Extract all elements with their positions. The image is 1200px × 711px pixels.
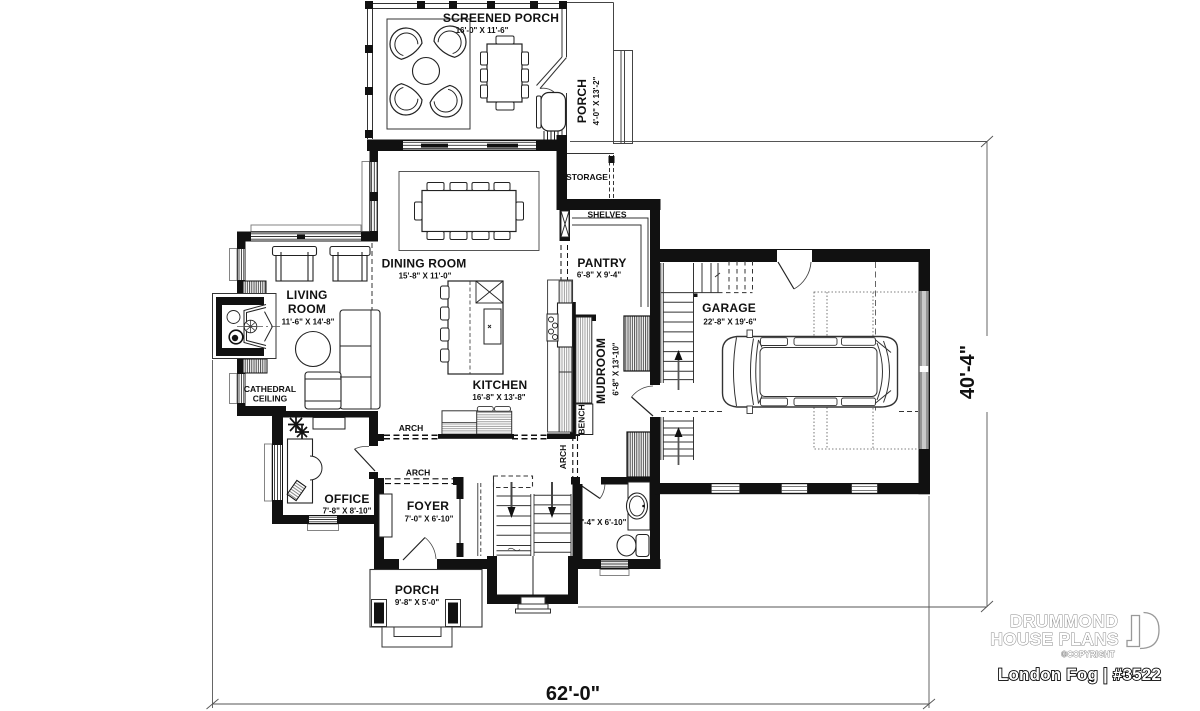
svg-text:11'-6" X 14'-8": 11'-6" X 14'-8" [282, 318, 335, 327]
svg-text:ARCH: ARCH [406, 468, 431, 478]
svg-text:16'-0" X 11'-6": 16'-0" X 11'-6" [456, 26, 509, 35]
svg-text:15'-8" X 11'-0": 15'-8" X 11'-0" [399, 272, 452, 281]
svg-text:BENCH: BENCH [576, 404, 586, 434]
svg-text:DINING ROOM: DINING ROOM [382, 257, 467, 271]
svg-text:62'-0": 62'-0" [546, 683, 600, 705]
svg-text:ARCH: ARCH [558, 445, 568, 470]
svg-text:40'-4": 40'-4" [957, 345, 979, 399]
svg-text:16'-8" X 13'-8": 16'-8" X 13'-8" [472, 393, 525, 402]
svg-text:OFFICE: OFFICE [324, 492, 369, 506]
svg-text:GARAGE: GARAGE [702, 301, 756, 315]
svg-text:7'-8" X 8'-10": 7'-8" X 8'-10" [323, 507, 372, 516]
svg-text:STORAGE: STORAGE [566, 172, 608, 182]
svg-text:FOYER: FOYER [407, 499, 449, 513]
svg-text:9'-8" X 5'-0": 9'-8" X 5'-0" [395, 598, 440, 607]
svg-text:CEILING: CEILING [253, 394, 288, 404]
svg-text:ROOM: ROOM [288, 302, 326, 316]
svg-text:SCREENED PORCH: SCREENED PORCH [443, 11, 559, 25]
svg-text:4'-0" X 13'-2": 4'-0" X 13'-2" [592, 76, 601, 125]
svg-text:SHELVES: SHELVES [587, 210, 626, 220]
svg-text:PANTRY: PANTRY [577, 256, 626, 270]
svg-text:HOUSE PLANS: HOUSE PLANS [990, 629, 1119, 649]
svg-text:LIVING: LIVING [286, 288, 327, 302]
svg-text:6'-8" X 9'-4": 6'-8" X 9'-4" [577, 271, 622, 280]
svg-text:22'-8" X 19'-6": 22'-8" X 19'-6" [703, 318, 756, 327]
svg-text:MUDROOM: MUDROOM [594, 338, 608, 404]
svg-text:PORCH: PORCH [395, 583, 439, 597]
svg-text:ARCH: ARCH [399, 423, 424, 433]
svg-text:6'-4" X 6'-10": 6'-4" X 6'-10" [578, 518, 627, 527]
svg-text:London Fog | #3522: London Fog | #3522 [998, 665, 1161, 684]
svg-text:7'-0" X 6'-10": 7'-0" X 6'-10" [405, 515, 454, 524]
svg-text:PORCH: PORCH [575, 79, 589, 123]
svg-text:DRUMMOND: DRUMMOND [1010, 611, 1118, 631]
svg-text:6'-8" X 13'-10": 6'-8" X 13'-10" [612, 342, 621, 395]
svg-text:CATHEDRAL: CATHEDRAL [244, 384, 296, 394]
svg-text:©COPYRIGHT: ©COPYRIGHT [1061, 650, 1115, 659]
svg-text:KITCHEN: KITCHEN [473, 378, 528, 392]
